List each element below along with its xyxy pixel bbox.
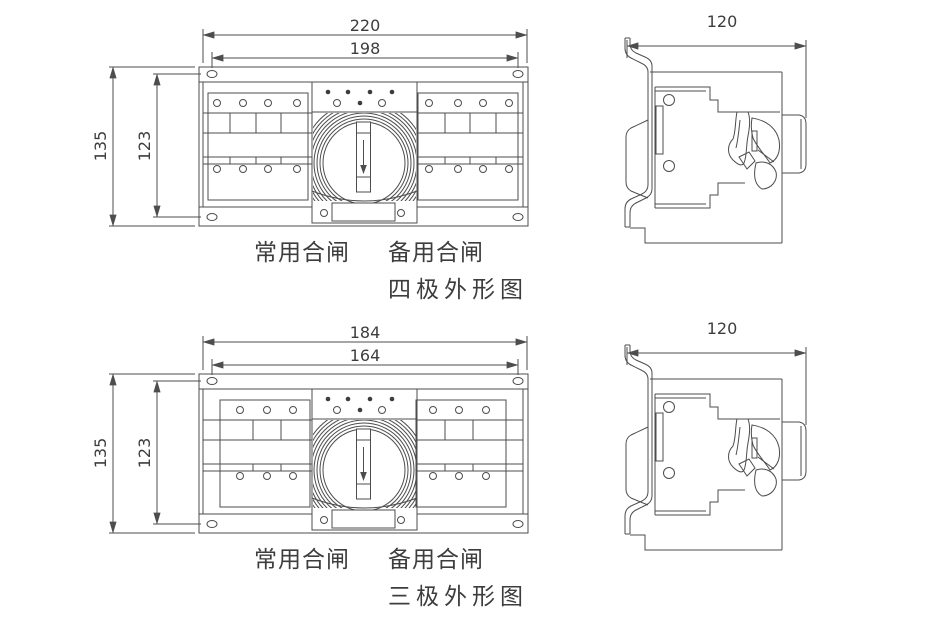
label-reserve-close: 备用合闸	[388, 546, 484, 572]
dim-hole-span-height: 123	[135, 438, 154, 469]
front-view-frame	[109, 29, 528, 226]
label-normal-close: 常用合闸	[254, 546, 350, 572]
dim-overall-width: 184	[350, 323, 381, 342]
front-view-frame	[109, 336, 528, 533]
three-pole-drawing: 184 164 135 123 120 常用合闸 备用合闸 三极外形图	[91, 319, 806, 609]
side-view	[625, 38, 806, 243]
label-reserve-close: 备用合闸	[388, 239, 484, 265]
dim-overall-height: 135	[91, 438, 110, 469]
side-view	[625, 345, 806, 550]
dim-hole-span-height: 123	[135, 131, 154, 162]
dim-overall-width: 220	[350, 16, 381, 35]
dim-hole-span-width: 198	[350, 39, 381, 58]
transfer-switch-outline-drawing: 220 198 135 123 120 常用合闸 备用合闸 四极外形图 184 …	[0, 0, 930, 628]
view-title-four-pole: 四极外形图	[388, 276, 528, 302]
dim-depth: 120	[707, 12, 738, 31]
four-pole-drawing: 220 198 135 123 120 常用合闸 备用合闸 四极外形图	[91, 12, 806, 302]
view-title-three-pole: 三极外形图	[388, 583, 528, 609]
technical-drawing-canvas: 220 198 135 123 120 常用合闸 备用合闸 四极外形图 184 …	[0, 0, 930, 628]
label-normal-close: 常用合闸	[254, 239, 350, 265]
dim-hole-span-width: 164	[350, 346, 381, 365]
dim-overall-height: 135	[91, 131, 110, 162]
dim-depth: 120	[707, 319, 738, 338]
